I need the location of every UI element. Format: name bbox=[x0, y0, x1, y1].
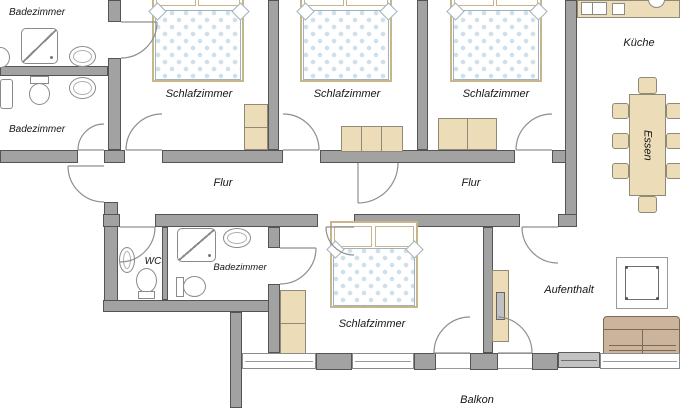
door-bath2 bbox=[78, 124, 104, 150]
room-label-schlafzimmer-1: Schlafzimmer bbox=[166, 88, 233, 100]
door-corridor bbox=[358, 163, 398, 203]
room-label-flur-east: Flur bbox=[462, 177, 481, 189]
room-label-wc: WC bbox=[145, 256, 162, 267]
door-bath1-bedroom1 bbox=[121, 22, 157, 58]
room-label-balkon: Balkon bbox=[460, 394, 494, 406]
room-label-badezimmer-bottom: Badezimmer bbox=[213, 262, 266, 273]
room-label-badezimmer-top: Badezimmer bbox=[9, 7, 65, 18]
door-bedroom1 bbox=[126, 114, 162, 150]
door-lounge bbox=[522, 227, 558, 263]
room-label-schlafzimmer-2: Schlafzimmer bbox=[314, 88, 381, 100]
room-label-aufenthalt: Aufenthalt bbox=[544, 284, 594, 296]
door-bedroom2 bbox=[283, 114, 319, 150]
door-bedroom4 bbox=[326, 227, 354, 255]
door-balcony-lounge bbox=[498, 317, 532, 353]
room-label-badezimmer-left: Badezimmer bbox=[9, 124, 65, 135]
door-balcony-bedroom4 bbox=[434, 317, 470, 353]
room-label-flur-west: Flur bbox=[214, 177, 233, 189]
door-bedroom3 bbox=[516, 114, 552, 150]
door-swing-arcs bbox=[0, 0, 680, 408]
room-label-kueche: Küche bbox=[623, 37, 654, 49]
room-label-schlafzimmer-4: Schlafzimmer bbox=[339, 318, 406, 330]
door-bath3-bedroom4 bbox=[280, 248, 316, 284]
door-entrance bbox=[68, 166, 104, 202]
room-label-schlafzimmer-3: Schlafzimmer bbox=[463, 88, 530, 100]
floor-plan: Essen Badezimmer bbox=[0, 0, 680, 408]
